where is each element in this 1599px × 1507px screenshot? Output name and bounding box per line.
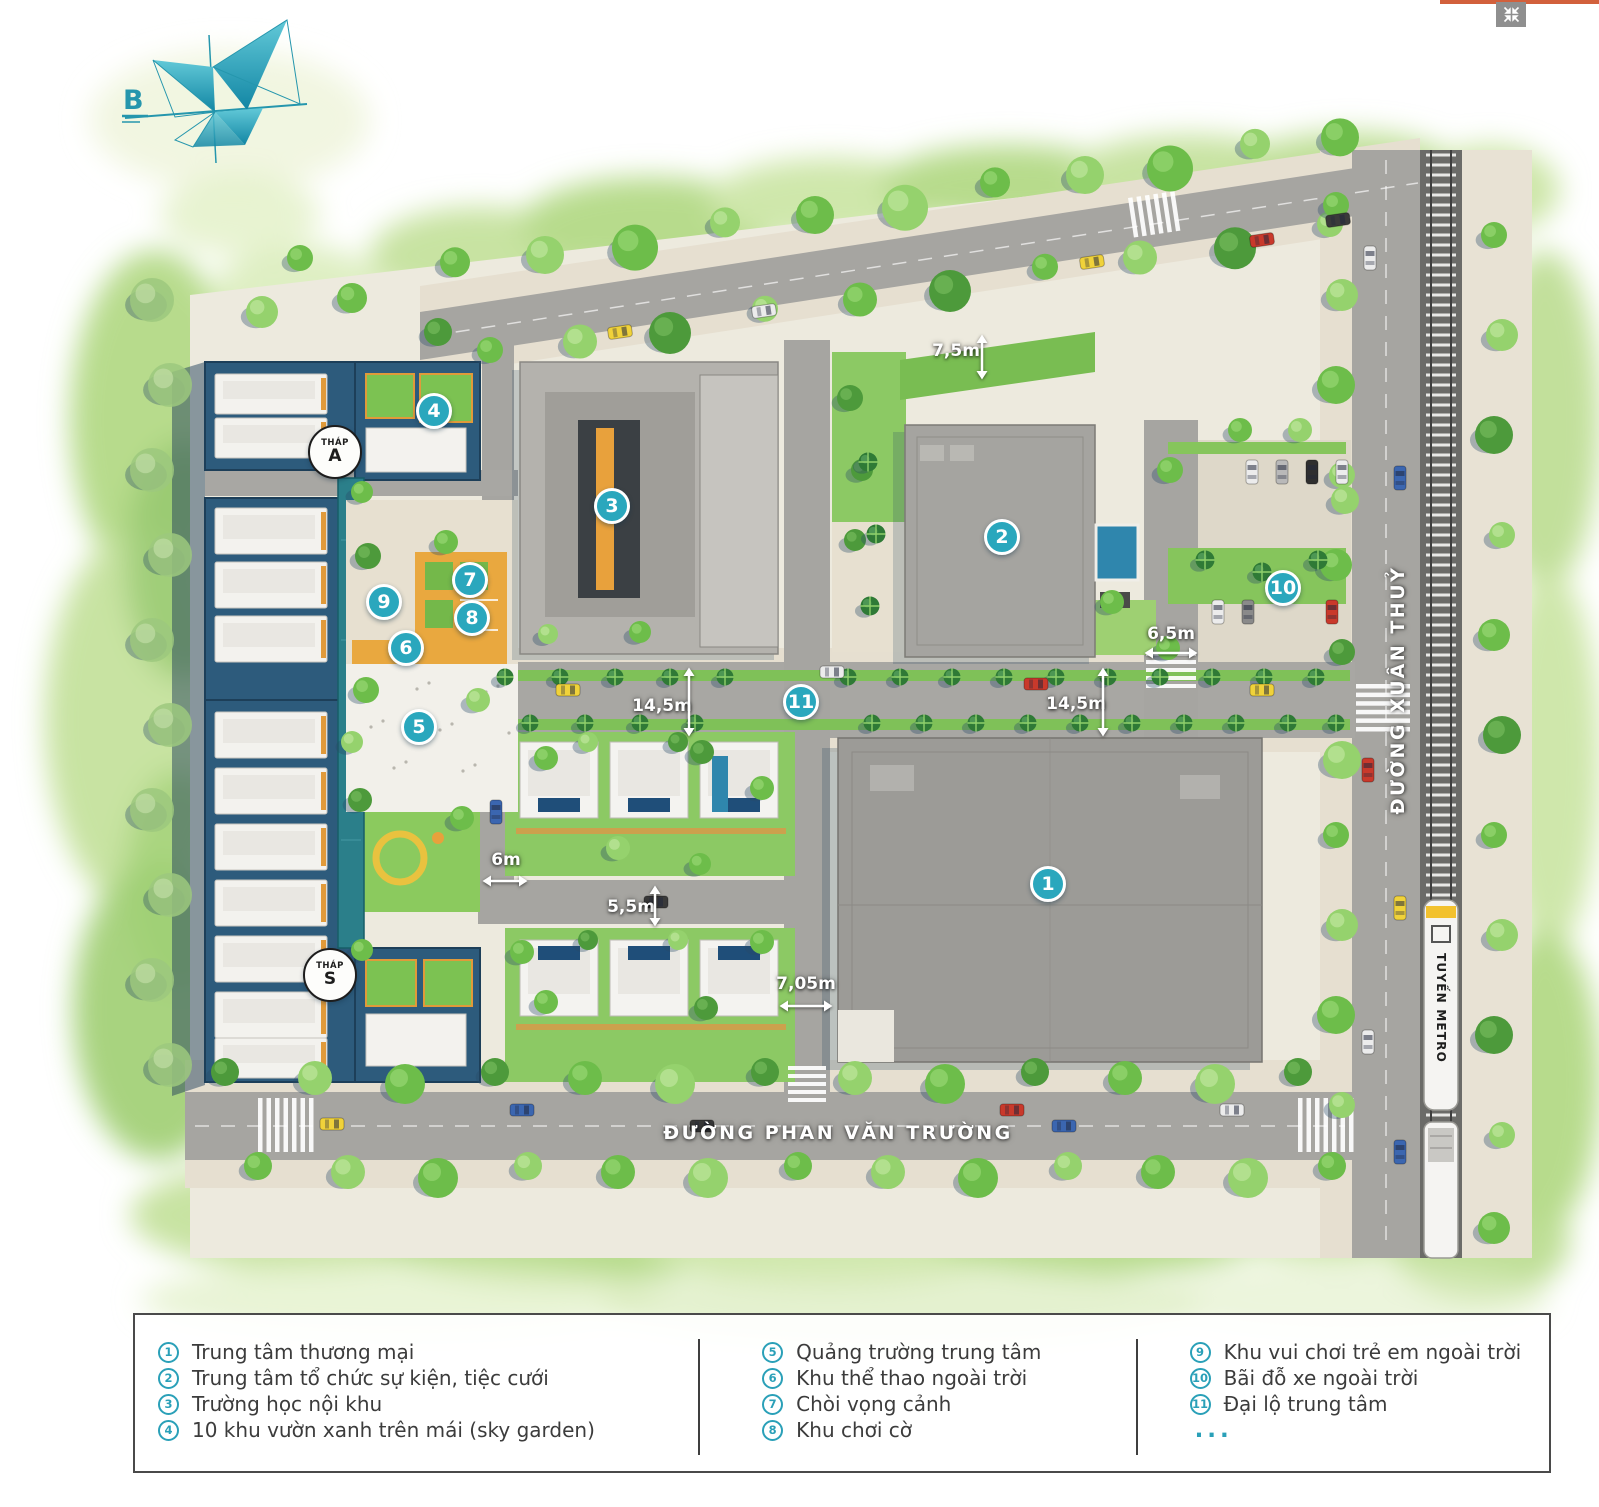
dimension-arrow: [645, 885, 665, 927]
street-label-xuan-thuy: ĐƯỜNG XUÂN THUỶ: [1387, 566, 1409, 815]
compass-north-label: B: [123, 85, 144, 116]
legend-item-4: 410 khu vườn xanh trên mái (sky garden): [158, 1417, 698, 1443]
map-marker-10: 10: [1265, 570, 1301, 606]
map-marker-11: 11: [783, 684, 819, 720]
legend-item-label: Chòi vọng cảnh: [796, 1394, 951, 1414]
metro-line-label: TUYẾN METRO: [1434, 953, 1448, 1063]
legend-item-number: 4: [158, 1420, 179, 1441]
map-marker-6: 6: [388, 630, 424, 666]
legend-item-number: 6: [762, 1368, 783, 1389]
legend-item-11: 11Đại lộ trung tâm: [1190, 1391, 1549, 1417]
compass-rose: B: [95, 5, 345, 180]
legend-column-3: 9Khu vui chơi trẻ em ngoài trời10Bãi đỗ …: [1136, 1339, 1549, 1455]
legend-more: ...: [1190, 1417, 1549, 1443]
legend-more-dots: ...: [1195, 1420, 1233, 1440]
map-marker-1: 1: [1030, 866, 1066, 902]
legend-item-number: 8: [762, 1420, 783, 1441]
legend-item-number: 1: [158, 1342, 179, 1363]
tower-letter: A: [328, 448, 341, 465]
legend-item-number: 10: [1190, 1368, 1211, 1389]
legend-item-1: 1Trung tâm thương mại: [158, 1339, 698, 1365]
legend-item-number: 5: [762, 1342, 783, 1363]
exit-fullscreen-button[interactable]: [1496, 2, 1526, 27]
dimension-arrow: [972, 334, 992, 380]
dimension-arrow: [679, 667, 699, 737]
map-marker-5: 5: [401, 709, 437, 745]
legend-column-1: 1Trung tâm thương mại2Trung tâm tổ chức …: [135, 1339, 698, 1455]
tower-badge-a: THÁPA: [308, 425, 362, 479]
legend-item-number: 11: [1190, 1394, 1211, 1415]
legend-item-10: 10Bãi đỗ xe ngoài trời: [1190, 1365, 1549, 1391]
dimension-label: 6,5m: [1147, 624, 1195, 644]
map-marker-2: 2: [984, 519, 1020, 555]
legend-panel: 1Trung tâm thương mại2Trung tâm tổ chức …: [133, 1313, 1551, 1473]
legend-item-9: 9Khu vui chơi trẻ em ngoài trời: [1190, 1339, 1549, 1365]
legend-item-label: Quảng trường trung tâm: [796, 1342, 1041, 1362]
legend-item-label: Bãi đỗ xe ngoài trời: [1224, 1368, 1419, 1388]
legend-item-label: 10 khu vườn xanh trên mái (sky garden): [192, 1420, 595, 1440]
map-marker-4: 4: [416, 393, 452, 429]
dimension-arrow: [482, 871, 528, 891]
legend-item-number: 3: [158, 1394, 179, 1415]
legend-item-label: Khu vui chơi trẻ em ngoài trời: [1224, 1342, 1522, 1362]
compress-icon: [1503, 6, 1520, 23]
dimension-arrow: [779, 996, 833, 1016]
legend-column-2: 5Quảng trường trung tâm6Khu thể thao ngo…: [698, 1339, 1135, 1455]
map-marker-8: 8: [454, 600, 490, 636]
legend-item-label: Khu chơi cờ: [796, 1420, 912, 1440]
legend-item-8: 8Khu chơi cờ: [762, 1417, 1135, 1443]
site-plan-page: B ĐƯỜNG XUÂN THUỶ ĐƯỜNG PHAN VĂN TRƯỜNG …: [0, 0, 1599, 1507]
map-marker-7: 7: [452, 562, 488, 598]
legend-item-number: 2: [158, 1368, 179, 1389]
legend-item-7: 7Chòi vọng cảnh: [762, 1391, 1135, 1417]
street-label-phan-van-truong: ĐƯỜNG PHAN VĂN TRƯỜNG: [663, 1122, 1013, 1144]
legend-item-label: Trung tâm tổ chức sự kiện, tiệc cưới: [192, 1368, 549, 1388]
map-marker-9: 9: [366, 584, 402, 620]
legend-item-6: 6Khu thể thao ngoài trời: [762, 1365, 1135, 1391]
dimension-arrow: [1144, 643, 1198, 663]
dimension-arrow: [1093, 667, 1113, 737]
legend-item-5: 5Quảng trường trung tâm: [762, 1339, 1135, 1365]
legend-item-2: 2Trung tâm tổ chức sự kiện, tiệc cưới: [158, 1365, 698, 1391]
legend-item-3: 3Trường học nội khu: [158, 1391, 698, 1417]
legend-item-label: Đại lộ trung tâm: [1224, 1394, 1388, 1414]
legend-item-label: Trường học nội khu: [192, 1394, 382, 1414]
tower-badge-s: THÁPS: [303, 948, 357, 1002]
map-marker-3: 3: [594, 488, 630, 524]
legend-item-number: 7: [762, 1394, 783, 1415]
legend-item-number: 9: [1190, 1342, 1211, 1363]
map-overlay: B ĐƯỜNG XUÂN THUỶ ĐƯỜNG PHAN VĂN TRƯỜNG …: [0, 0, 1599, 1507]
dimension-label: 7,05m: [776, 974, 836, 994]
legend-item-label: Trung tâm thương mại: [192, 1342, 414, 1362]
legend-item-label: Khu thể thao ngoài trời: [796, 1368, 1027, 1388]
dimension-label: 6m: [491, 850, 521, 870]
legend-columns: 1Trung tâm thương mại2Trung tâm tổ chức …: [135, 1315, 1549, 1471]
tower-letter: S: [324, 971, 336, 988]
